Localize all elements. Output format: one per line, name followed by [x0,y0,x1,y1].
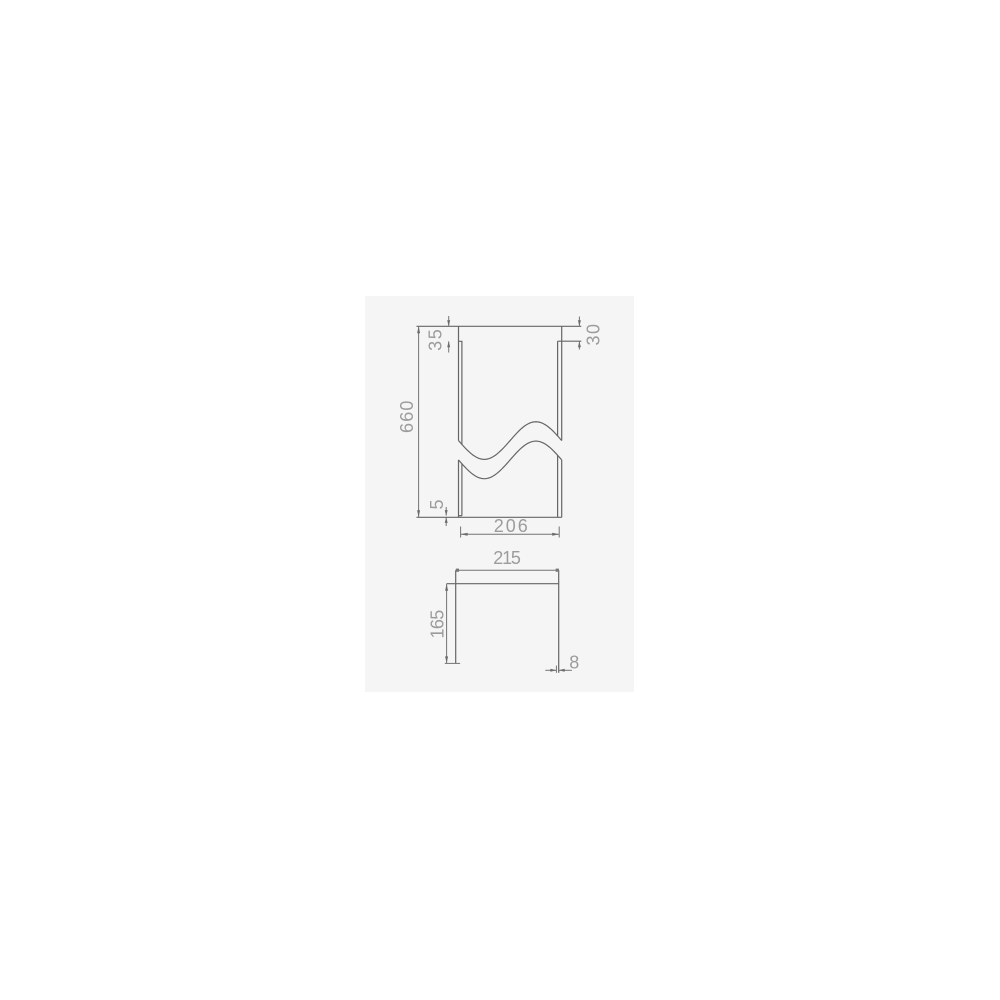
svg-text:35: 35 [425,328,445,351]
svg-text:206: 206 [494,516,530,536]
svg-text:8: 8 [569,653,579,673]
svg-text:30: 30 [583,322,603,345]
svg-text:165: 165 [427,610,447,639]
svg-text:660: 660 [397,399,417,433]
svg-text:215: 215 [493,548,521,568]
svg-text:5: 5 [427,499,447,509]
